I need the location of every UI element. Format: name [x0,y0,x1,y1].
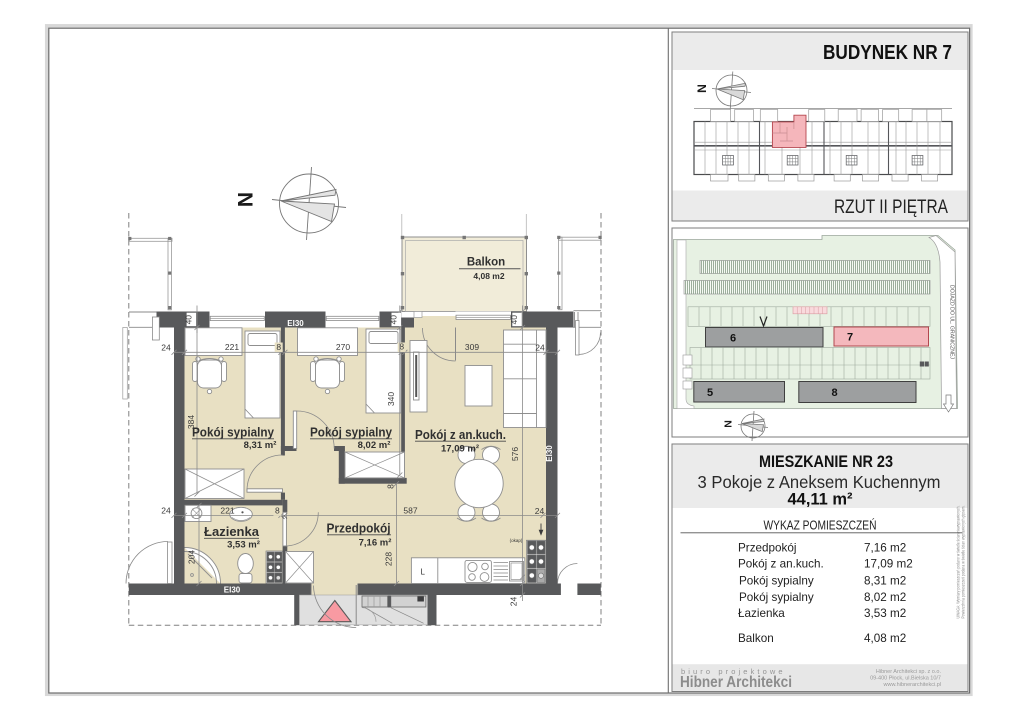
svg-text:24: 24 [535,343,545,353]
svg-text:8,31 m2: 8,31 m2 [864,574,906,587]
svg-text:8,31 m²: 8,31 m² [244,440,277,451]
svg-text:40: 40 [388,315,398,325]
svg-text:587: 587 [403,505,417,515]
svg-text:24: 24 [161,505,171,515]
svg-text:Pokój sypialny: Pokój sypialny [739,591,814,604]
svg-text:BUDYNEK NR 7: BUDYNEK NR 7 [823,42,952,64]
svg-text:Balkon: Balkon [738,632,774,645]
svg-text:Pokój z an.kuch.: Pokój z an.kuch. [738,558,824,571]
svg-text:3,53 m²: 3,53 m² [227,540,260,551]
svg-text:MIESZKANIE NR 23: MIESZKANIE NR 23 [759,453,893,471]
svg-text:EI30: EI30 [545,445,554,462]
svg-text:8: 8 [386,484,396,489]
svg-text:Pokój z an.kuch.: Pokój z an.kuch. [415,428,506,442]
svg-text:Pokój sypialny: Pokój sypialny [739,574,814,587]
svg-text:576: 576 [510,447,520,461]
svg-text:6: 6 [730,333,736,345]
svg-text:EI30: EI30 [287,319,304,328]
svg-text:N: N [723,420,735,428]
svg-text:N: N [695,84,709,93]
svg-text:24: 24 [509,597,519,607]
svg-text:5: 5 [707,387,713,399]
svg-text:40: 40 [509,315,519,325]
svg-text:228: 228 [384,552,394,566]
svg-text:RZUT II PIĘTRA: RZUT II PIĘTRA [834,197,948,218]
svg-text:EI30: EI30 [224,586,241,595]
svg-text:Hibner Architekci: Hibner Architekci [680,674,792,691]
svg-text:270: 270 [336,342,350,352]
svg-text:Łazienka: Łazienka [204,525,260,539]
svg-text:L: L [421,568,426,577]
svg-text:17,09 m²: 17,09 m² [441,444,479,455]
svg-text:Pokój sypialny: Pokój sypialny [192,426,274,440]
svg-text:3 Pokoje z Aneksem Kuchennym: 3 Pokoje z Aneksem Kuchennym [698,472,941,492]
svg-text:221: 221 [225,342,239,352]
svg-text:221: 221 [220,505,234,515]
svg-text:N: N [235,192,258,207]
svg-text:4,08 m2: 4,08 m2 [864,632,906,645]
svg-text:309: 309 [465,342,479,352]
svg-text:24: 24 [161,342,171,352]
svg-text:8: 8 [276,342,281,352]
svg-text:3,53 m2: 3,53 m2 [864,607,906,620]
svg-text:4,08 m2: 4,08 m2 [473,271,504,281]
svg-text:8,02 m2: 8,02 m2 [864,591,906,604]
svg-text:Pokój sypialny: Pokój sypialny [310,426,392,440]
svg-text:8,02 m²: 8,02 m² [358,440,391,451]
svg-text:Przedpokój: Przedpokój [738,542,796,555]
svg-text:24: 24 [535,506,545,516]
svg-text:Balkon: Balkon [467,257,505,269]
svg-text:8: 8 [275,505,280,515]
svg-text:Hibner Architekci sp. z o.o.: Hibner Architekci sp. z o.o. [876,669,942,675]
svg-text:7: 7 [847,332,853,344]
svg-text:DOJAZD DO UL. GRANICZNEJ: DOJAZD DO UL. GRANICZNEJ [949,285,955,359]
svg-text:Przedpokój: Przedpokój [327,522,391,536]
svg-text:40: 40 [184,315,194,325]
svg-text:09-400 Płock, ul.Bielska 10/7: 09-400 Płock, ul.Bielska 10/7 [870,675,941,681]
svg-text:7,16 m2: 7,16 m2 [864,542,906,555]
svg-text:(okap): (okap) [510,538,523,543]
svg-text:44,11 m²: 44,11 m² [788,491,853,509]
svg-text:Łazienka: Łazienka [738,607,785,620]
svg-text:www.hibnerarchitekci.pl: www.hibnerarchitekci.pl [883,682,941,688]
svg-text:7,16 m²: 7,16 m² [359,538,392,549]
svg-text:204: 204 [187,550,197,564]
svg-text:Powierzchnia pomieszczeń podan: Powierzchnia pomieszczeń podana w świetl… [961,506,966,619]
svg-text:17,09 m2: 17,09 m2 [864,558,913,571]
svg-text:340: 340 [386,392,396,406]
svg-text:8: 8 [831,387,837,399]
svg-text:WYKAZ POMIESZCZEŃ: WYKAZ POMIESZCZEŃ [764,518,877,533]
